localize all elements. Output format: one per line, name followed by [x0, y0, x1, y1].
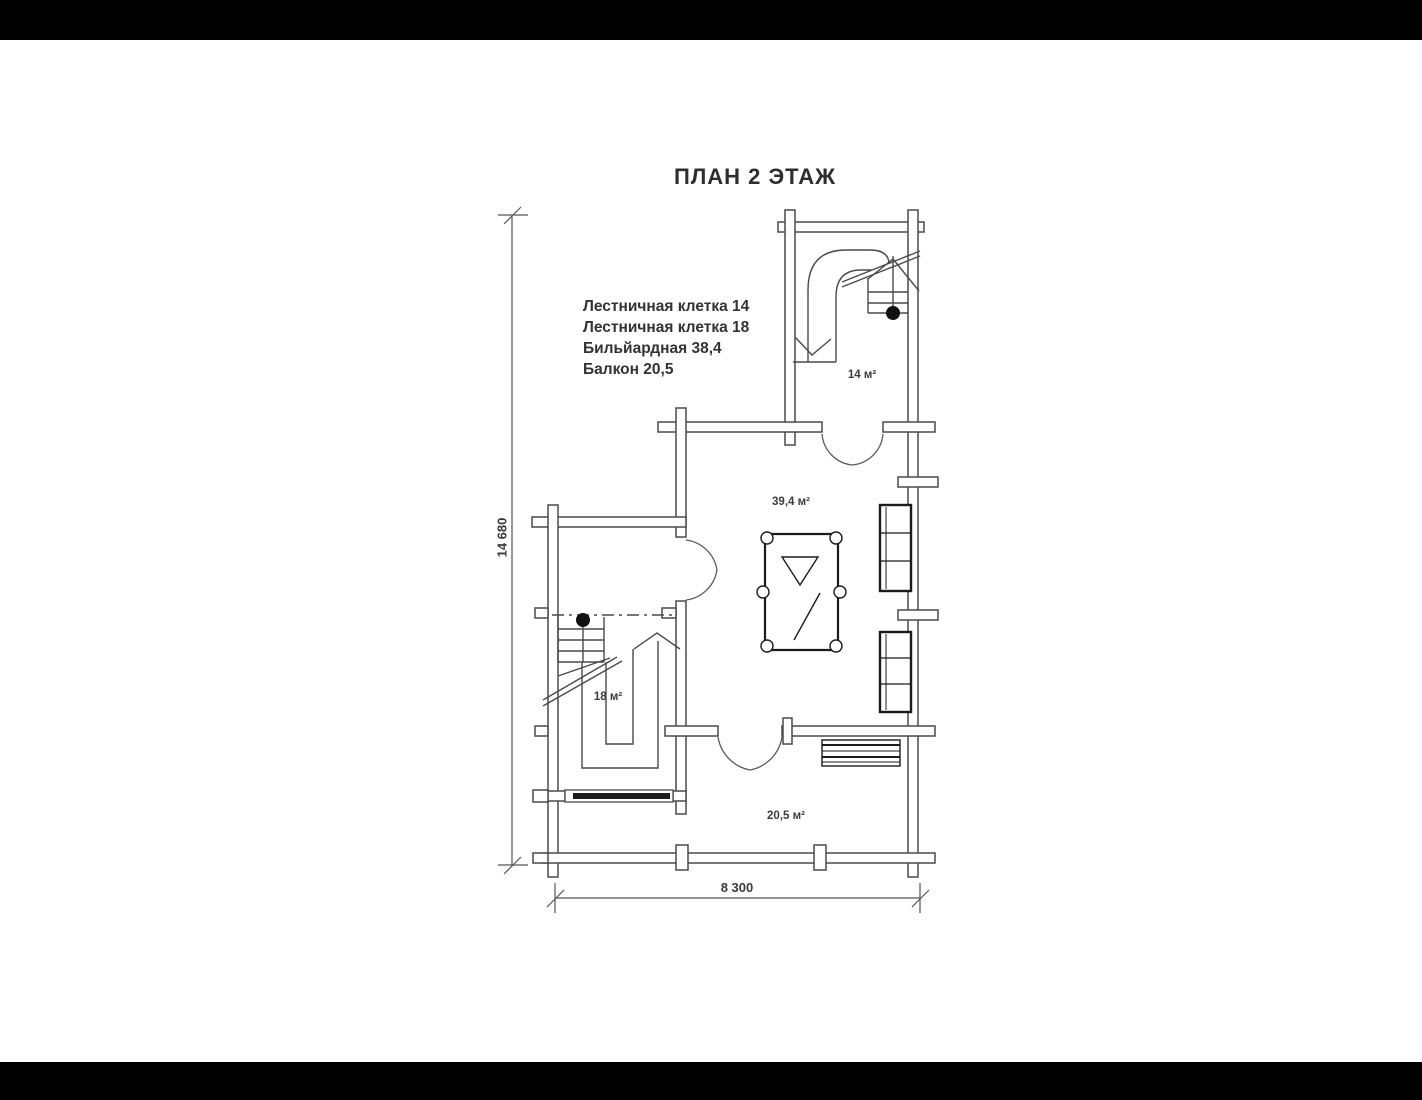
room-label-stair14: 14 м² — [836, 369, 888, 381]
legend-item-balcony: Балкон 20,5 — [583, 359, 749, 380]
legend-item-staircase-18: Лестничная клетка 18 — [583, 317, 749, 338]
legend-item-staircase-14: Лестничная клетка 14 — [583, 296, 749, 317]
newel-post-dot — [886, 306, 900, 320]
dimension-height-label: 14 680 — [495, 503, 510, 573]
sofa-bottom — [880, 632, 911, 712]
room-label-balcony: 20,5 м² — [751, 810, 821, 822]
sofas — [880, 505, 911, 712]
billiard-table — [757, 532, 846, 652]
newel-post-dot — [576, 613, 590, 627]
page-title: ПЛАН 2 ЭТАЖ — [615, 164, 895, 190]
legend-item-billiard: Бильйардная 38,4 — [583, 338, 749, 359]
dimension-width-label: 8 300 — [697, 880, 777, 895]
room-label-stair18: 18 м² — [582, 691, 634, 703]
sofa-top — [880, 505, 911, 591]
legend: Лестничная клетка 14 Лестничная клетка 1… — [583, 296, 749, 380]
window — [565, 790, 673, 802]
balcony-bench — [822, 740, 900, 766]
room-label-billiard: 39,4 м² — [756, 496, 826, 508]
stair-upper — [793, 250, 920, 362]
